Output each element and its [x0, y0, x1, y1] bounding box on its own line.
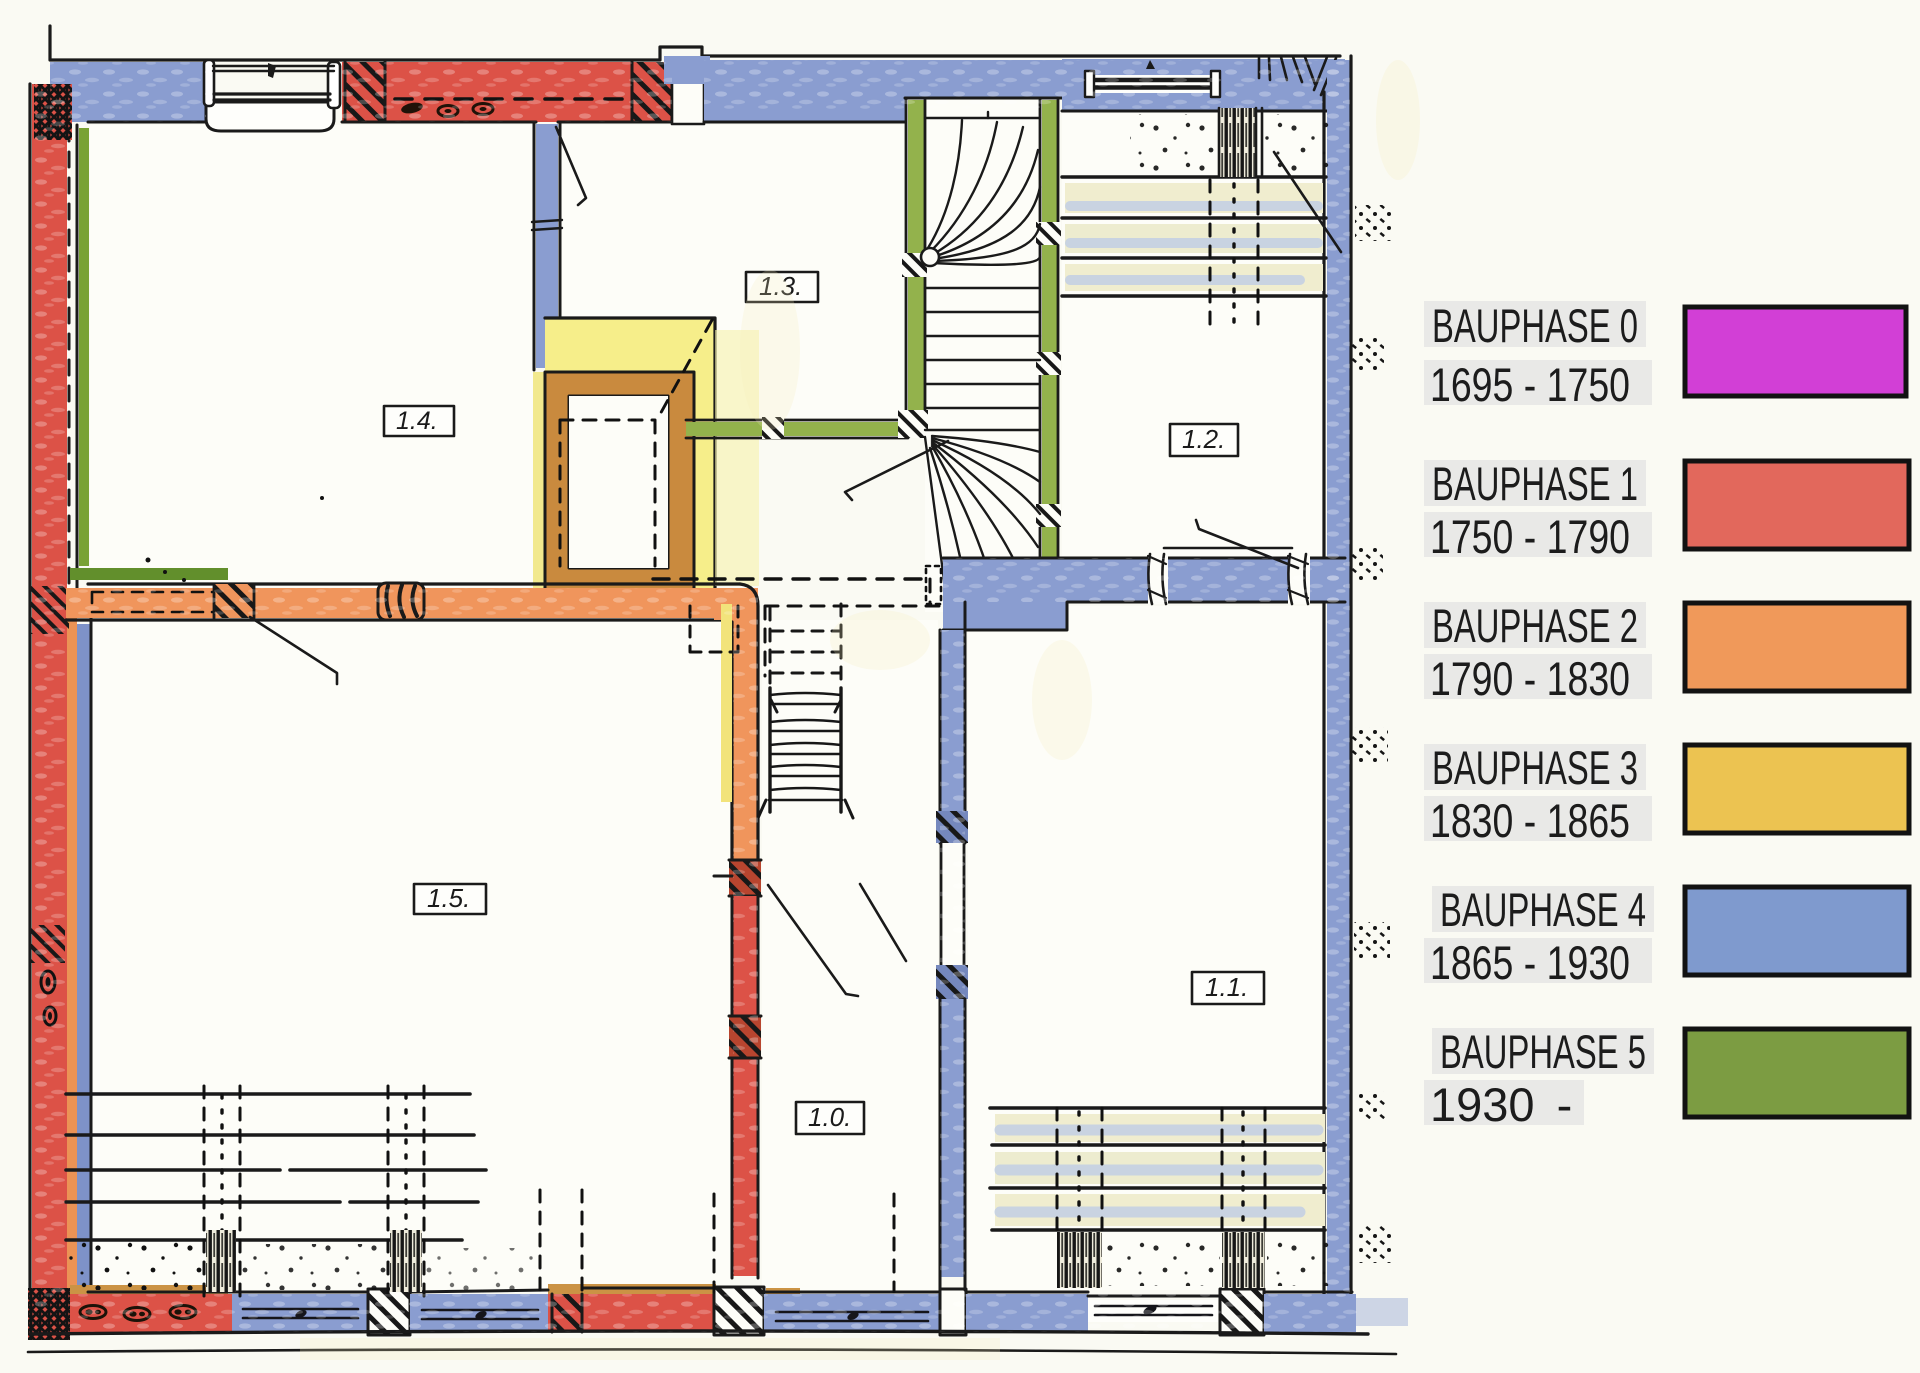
svg-text:1.1.: 1.1. [1205, 972, 1248, 1002]
svg-text:1.2.: 1.2. [1182, 424, 1225, 454]
svg-text:BAUPHASE 5: BAUPHASE 5 [1440, 1025, 1646, 1078]
svg-text:1830 - 1865: 1830 - 1865 [1430, 794, 1630, 847]
svg-text:1790 - 1830: 1790 - 1830 [1430, 652, 1630, 705]
svg-text:BAUPHASE 1: BAUPHASE 1 [1432, 457, 1638, 510]
svg-text:BAUPHASE 3: BAUPHASE 3 [1432, 741, 1638, 794]
svg-text:1.0.: 1.0. [808, 1102, 851, 1132]
svg-text:1695 - 1750: 1695 - 1750 [1430, 358, 1630, 411]
svg-text:1.5.: 1.5. [427, 883, 470, 913]
svg-text:1.4.: 1.4. [396, 407, 438, 435]
svg-text:1865 - 1930: 1865 - 1930 [1430, 936, 1630, 989]
svg-text:BAUPHASE 4: BAUPHASE 4 [1440, 883, 1646, 936]
svg-text:1750 - 1790: 1750 - 1790 [1430, 510, 1630, 563]
svg-text:BAUPHASE 0: BAUPHASE 0 [1432, 299, 1638, 352]
svg-text:BAUPHASE 2: BAUPHASE 2 [1432, 599, 1638, 652]
